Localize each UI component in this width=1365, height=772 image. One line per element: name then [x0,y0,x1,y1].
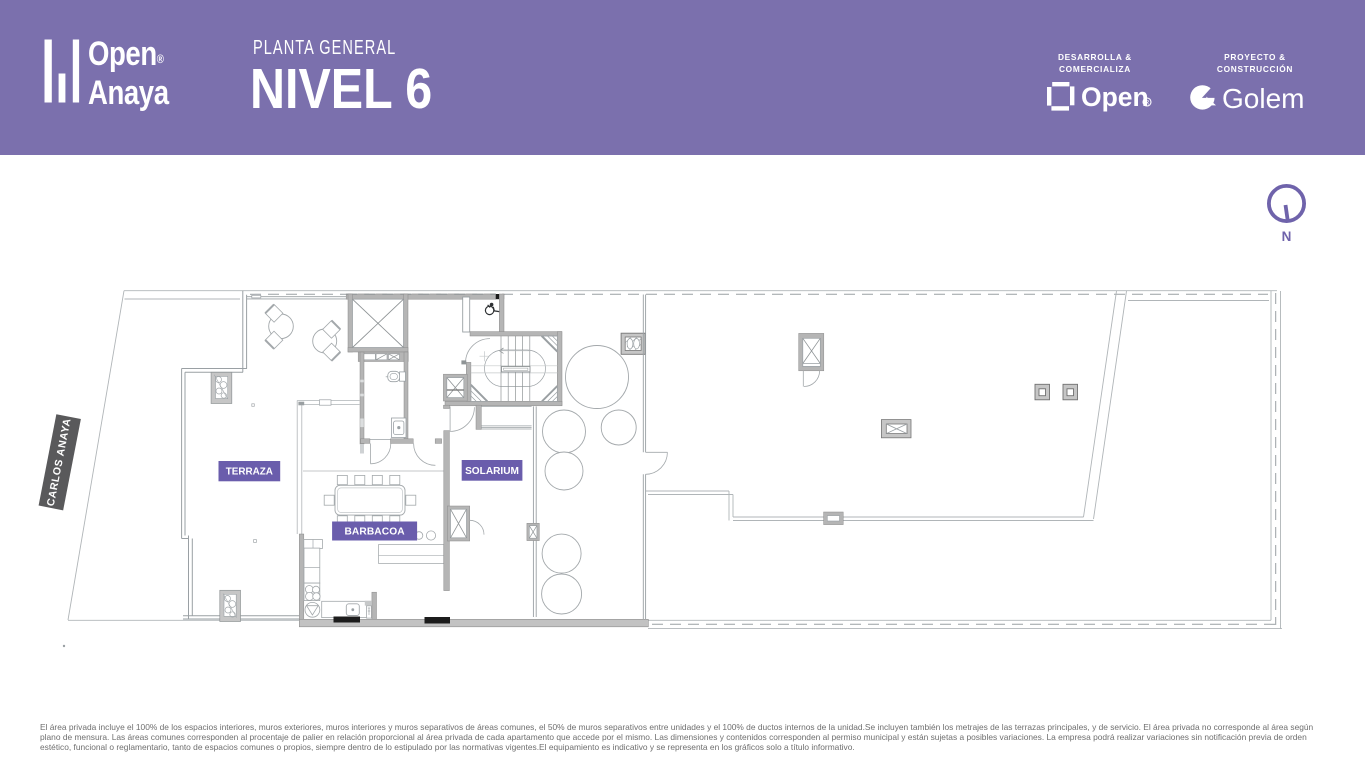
svg-text:BARBACOA: BARBACOA [344,527,405,538]
svg-text:TERRAZA: TERRAZA [226,467,273,478]
svg-text:SOLARIUM: SOLARIUM [465,466,519,477]
svg-text:N: N [1282,229,1292,244]
